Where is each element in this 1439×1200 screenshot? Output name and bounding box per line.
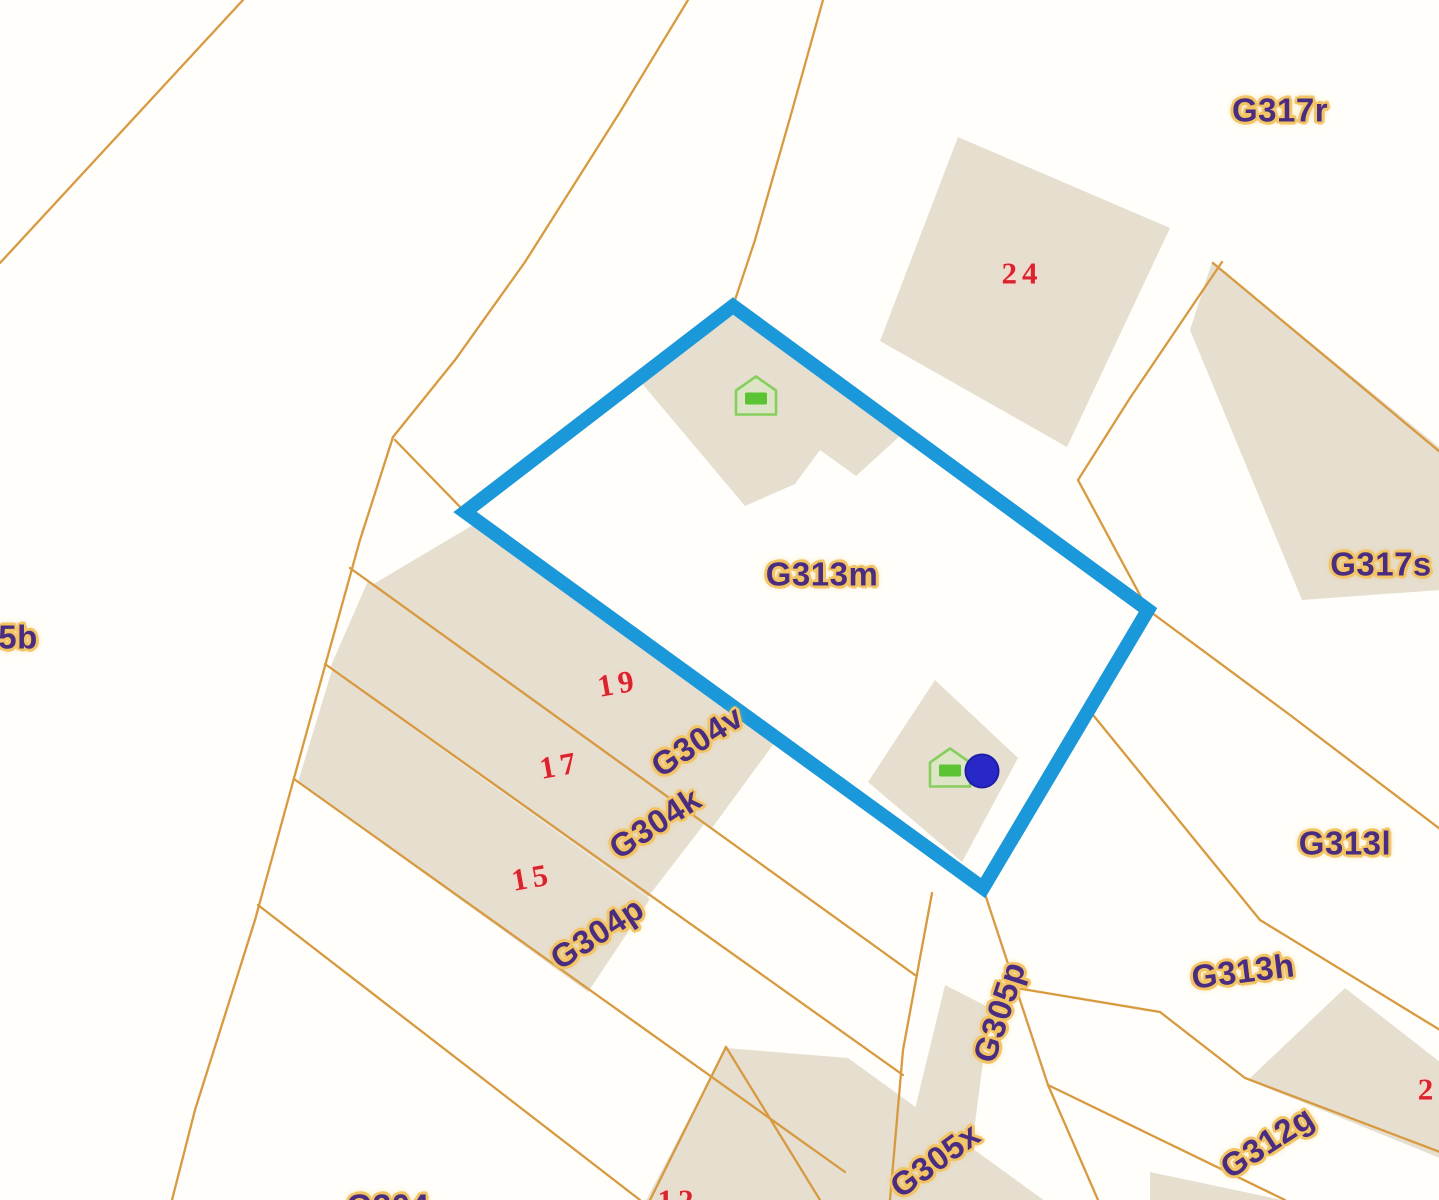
parcel-boundary-line xyxy=(0,0,243,263)
parcel-boundaries xyxy=(0,0,1439,1200)
parcel-boundary-line xyxy=(1148,610,1439,829)
map-geometry xyxy=(0,0,1439,1200)
building-footprint xyxy=(880,137,1170,447)
building-footprint xyxy=(1190,262,1439,600)
parcel-boundary-line xyxy=(733,0,823,306)
map-canvas[interactable]: G317rG317sG313mG313lG313hG312gG305pG305x… xyxy=(0,0,1439,1200)
building-footprints xyxy=(298,137,1439,1200)
parcel-boundary-line xyxy=(1089,710,1439,1030)
parcel-boundary-line xyxy=(395,440,465,512)
parcel-boundary-line xyxy=(983,888,1098,1200)
building-footprint xyxy=(1150,1172,1282,1200)
building-footprint xyxy=(868,680,1018,862)
building-footprint xyxy=(1248,988,1439,1158)
